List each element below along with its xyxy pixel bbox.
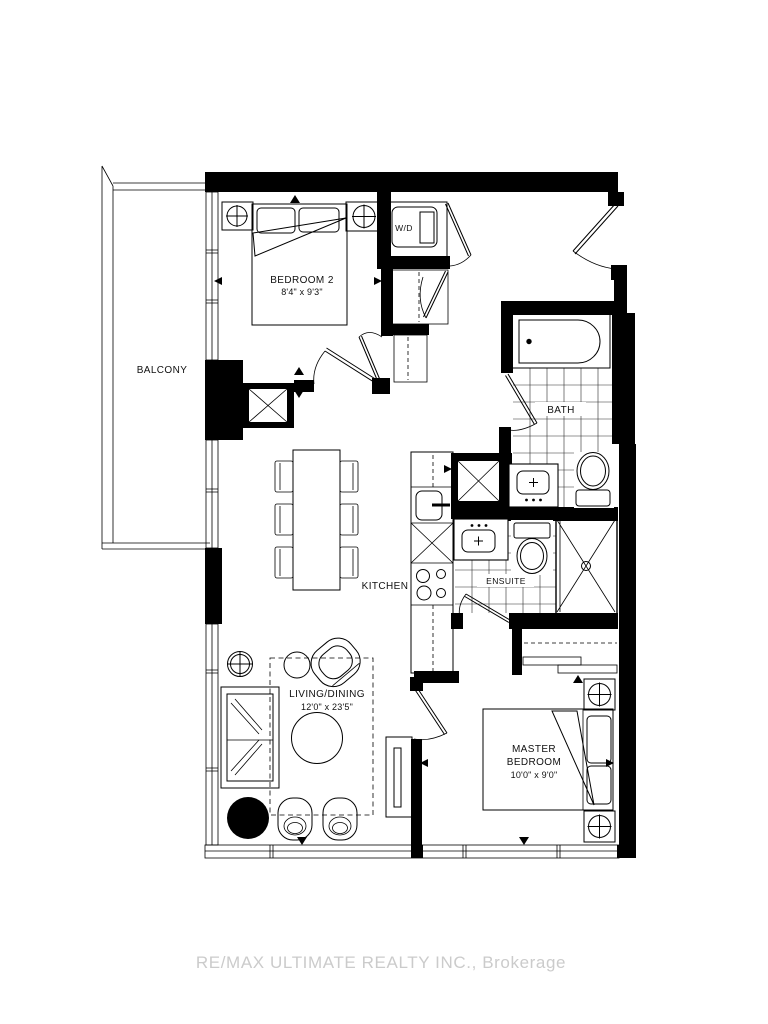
kitchen-label: KITCHEN [362, 581, 409, 592]
bathtub [512, 314, 610, 368]
bed-double [252, 204, 347, 325]
toilet [511, 520, 553, 575]
hall-closet-2 [394, 335, 427, 382]
laundry-label: W/D [395, 223, 413, 233]
living-dining-label: LIVING/DINING [289, 689, 365, 700]
floor-plan-page: BALCONY [0, 0, 768, 1024]
brokerage-watermark: RE/MAX ULTIMATE REALTY INC., Brokerage [196, 953, 566, 972]
round-side-table [284, 652, 310, 678]
stove [417, 570, 446, 601]
kitchen-sink [416, 491, 450, 520]
nightstand [584, 679, 615, 710]
dining-chair [275, 504, 293, 535]
ensuite-vanity-sink [454, 519, 508, 560]
nightstand [584, 811, 615, 842]
dimension-arrow [294, 390, 304, 398]
dimension-arrow [290, 195, 300, 203]
kitchen-cabinet [411, 523, 453, 563]
ottoman [227, 797, 269, 839]
armchair [304, 631, 367, 693]
dimension-arrow [444, 465, 452, 473]
dining-table [293, 450, 340, 590]
living-dining-dimensions: 12'0" x 23'5" [301, 702, 353, 712]
bath-label: BATH [547, 405, 575, 416]
bedroom2-label: BEDROOM 2 [270, 275, 334, 286]
barrel-chair [323, 798, 357, 840]
nightstand [346, 202, 382, 231]
hall-closet-1 [391, 270, 448, 324]
ensuite: ENSUITE [454, 519, 617, 614]
nightstand [222, 202, 253, 230]
service-shaft-west [243, 383, 294, 428]
dimension-arrow [294, 367, 304, 375]
ensuite-label: ENSUITE [486, 576, 526, 586]
kitchen: KITCHEN [362, 452, 453, 673]
bedroom2-dimensions: 8'4" x 9'3" [281, 287, 323, 297]
window-living-upper [206, 440, 218, 548]
shower [556, 519, 617, 614]
toilet [574, 452, 614, 508]
bath-vanity-sink [509, 464, 558, 507]
sofa [221, 687, 279, 788]
tv-console [386, 737, 412, 817]
coffee-table [292, 713, 343, 764]
barrel-chair [278, 798, 312, 840]
window-living-lower [206, 624, 218, 845]
closet-door [420, 271, 448, 318]
ensuite-door [459, 594, 510, 623]
entry-door [573, 203, 618, 269]
master-closet [523, 643, 617, 673]
dining-chair [340, 547, 358, 578]
balcony-label: BALCONY [137, 365, 188, 376]
dimension-arrow [573, 675, 583, 683]
laundry-closet: W/D [382, 202, 447, 258]
master-bedroom-dimensions: 10'0" x 9'0" [511, 770, 558, 780]
floor-plan-drawing: BALCONY [0, 0, 768, 1024]
living-dining: LIVING/DINING 12'0" x 23'5" [221, 631, 412, 840]
dining-chair [340, 461, 358, 492]
bedroom2: BEDROOM 2 8'4" x 9'3" [222, 202, 382, 325]
dining-set [275, 450, 358, 590]
service-shaft-kitchen [458, 461, 499, 501]
side-table-lamp [227, 651, 253, 677]
dimension-arrow [519, 837, 529, 845]
dining-chair [275, 461, 293, 492]
master-bedroom-label-2: BEDROOM [507, 757, 561, 768]
balcony: BALCONY [102, 166, 210, 549]
window-bedroom2 [206, 192, 218, 360]
master-bedroom-door [414, 689, 447, 740]
dining-chair [275, 547, 293, 578]
dimension-arrow [374, 277, 382, 285]
master-bedroom: MASTER BEDROOM 10'0" x 9'0" [483, 643, 617, 842]
dimension-arrow [297, 837, 307, 845]
master-bedroom-label-1: MASTER [512, 744, 556, 755]
dining-chair [340, 504, 358, 535]
